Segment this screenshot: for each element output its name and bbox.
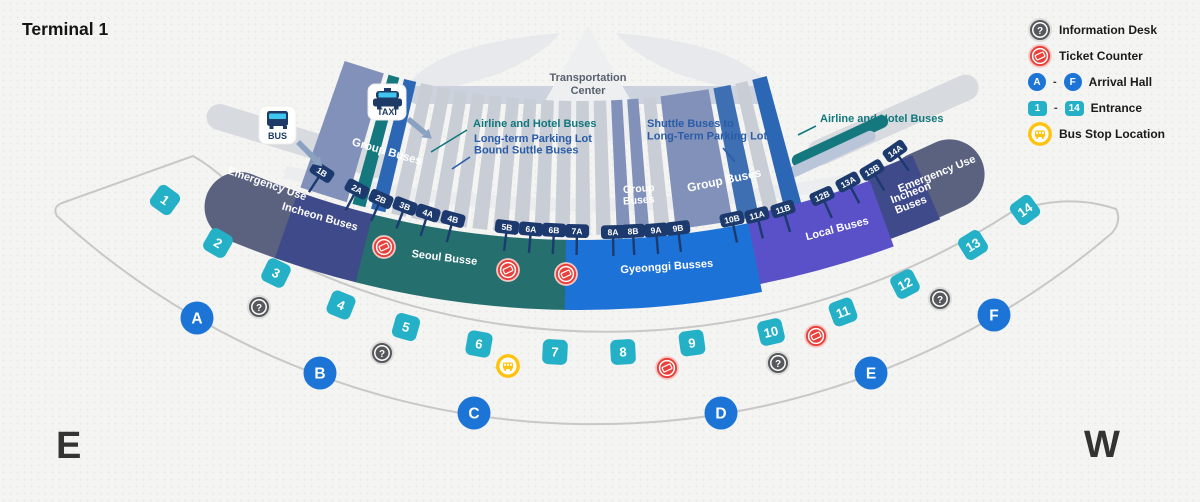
entrance-chip: 12 xyxy=(888,267,922,301)
gate-chip-label: 9A xyxy=(650,225,662,236)
entrance-chip: 6 xyxy=(465,330,494,359)
callout-label: Shuttle Buses to xyxy=(647,118,734,130)
callout-label: Long-Term Parking Lot xyxy=(647,131,768,143)
gate-chip-label: 7A xyxy=(571,226,582,236)
arrival-hall-letter: C xyxy=(468,406,479,423)
callout-label: Long-term Parking Lot xyxy=(474,133,592,145)
entrance-chip: 9 xyxy=(678,329,706,357)
transportation-center-label: Center xyxy=(571,85,607,97)
callout-leader-line xyxy=(798,126,816,135)
terminal-map-page: Terminal 1 Information Desk Ticket Count… xyxy=(0,0,1200,502)
taxi-icon-window xyxy=(379,93,397,98)
gate-chip-label: 6A xyxy=(525,224,537,235)
bus-icon-wheel xyxy=(270,126,274,129)
compass-east: E xyxy=(56,425,81,468)
arrival-hall-marker: E xyxy=(855,357,888,390)
entrance-chip: 11 xyxy=(827,296,859,328)
taxi-access-card: TAXI xyxy=(368,84,406,120)
ticket-counter-icon xyxy=(555,263,577,285)
gate-chip-label: 6B xyxy=(548,225,559,236)
ticket-counter-icon xyxy=(373,236,395,258)
arrival-hall-letter: A xyxy=(191,311,202,328)
callout-label: Bound Suttle Buses xyxy=(474,145,579,157)
arrival-hall-marker: A xyxy=(181,302,214,335)
information-desk-icon xyxy=(929,288,951,310)
compass-west: W xyxy=(1084,424,1120,467)
callout-label: Airline and Hotel Buses xyxy=(820,113,943,125)
arrival-hall-marker: B xyxy=(304,357,337,390)
arrival-hall-marker: C xyxy=(458,397,491,430)
arrival-hall-marker: D xyxy=(705,397,738,430)
bus-card-label: BUS xyxy=(268,131,287,141)
callout-label: Airline and Hotel Buses xyxy=(473,118,596,130)
entrance-chip: 5 xyxy=(391,312,422,343)
ticket-counter-icon xyxy=(656,357,678,379)
ticket-counter-icon xyxy=(497,259,519,281)
entrance-chip: 8 xyxy=(610,339,636,365)
information-desk-icon xyxy=(371,342,393,364)
entrance-chip: 13 xyxy=(956,228,990,262)
arrival-hall-marker: F xyxy=(978,299,1011,332)
gate-chip-label: 9B xyxy=(672,223,684,234)
entrance-chip: 1 xyxy=(148,183,183,218)
entrance-chip: 7 xyxy=(542,339,568,365)
information-desk-icon xyxy=(767,352,789,374)
gate-chip-label: 8A xyxy=(607,227,618,237)
arrival-hall-letter: F xyxy=(989,308,998,325)
group-buses-label: Buses xyxy=(623,193,655,207)
bus-access-card: BUS xyxy=(259,106,296,144)
gate-chip-label: 5B xyxy=(501,222,513,233)
entrance-chip: 14 xyxy=(1008,193,1043,228)
arrival-hall-letter: B xyxy=(314,366,325,383)
entrance-chip-label: 7 xyxy=(551,344,559,359)
information-desk-icon xyxy=(248,296,270,318)
arrival-hall-letter: D xyxy=(715,406,726,423)
entrance-chip: 10 xyxy=(756,317,786,347)
gate-stem xyxy=(529,234,531,253)
arrival-hall-letter: E xyxy=(866,366,876,383)
bus-stop-icon xyxy=(495,356,519,376)
bus-icon-wheel xyxy=(283,126,287,129)
gate-stem xyxy=(633,236,634,255)
ticket-counter-icon xyxy=(805,325,827,347)
gate-stem xyxy=(656,235,658,254)
bus-icon-window xyxy=(269,114,286,120)
taxi-icon-body xyxy=(373,99,402,107)
entrance-chip-label: 8 xyxy=(619,344,627,359)
taxi-icon-sign xyxy=(384,88,391,91)
taxi-card-label: TAXI xyxy=(377,107,397,117)
transportation-center-label: Transportation xyxy=(549,72,626,84)
terminal-1-map: TransportationCenterEmergency UseEmergen… xyxy=(0,0,1200,502)
gate-chip-label: 8B xyxy=(627,226,638,237)
entrance-chip: 4 xyxy=(325,289,358,322)
gate-stem xyxy=(553,235,554,254)
